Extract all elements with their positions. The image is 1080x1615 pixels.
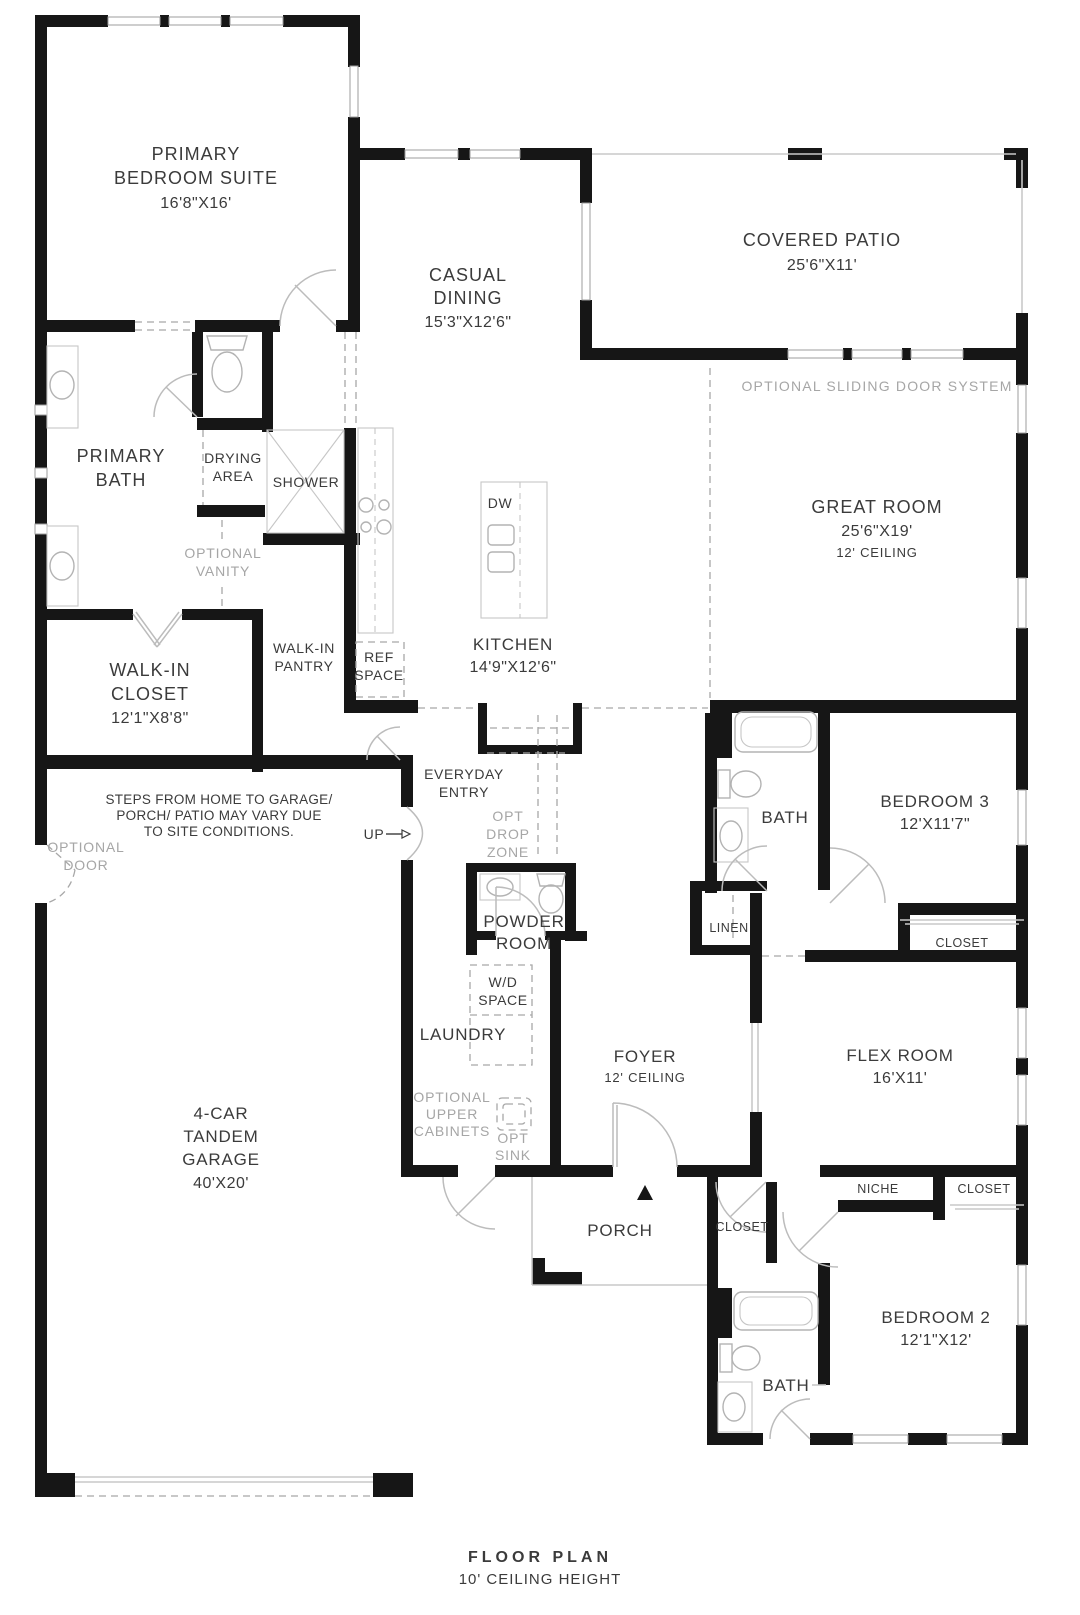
plan-title: FLOOR PLAN: [468, 1549, 612, 1566]
note-optional-upper-cabinets: OPTIONAL: [413, 1089, 490, 1105]
room-dims-flex-room: 16'X11': [873, 1070, 928, 1087]
note-opt-drop-zone: OPT: [492, 808, 523, 824]
room-label-laundry: LAUNDRY: [420, 1025, 507, 1044]
bath-sink-icon: [714, 808, 748, 862]
room-dims-casual-dining: 15'3"X12'6": [424, 314, 511, 331]
bath-sink-icon: [718, 1382, 752, 1432]
room-dims-covered-patio: 25'6"X11': [787, 257, 857, 274]
room-label-kitchen: KITCHEN: [473, 635, 553, 654]
opt-sink-icon: [497, 1098, 531, 1130]
room-label-shower: SHOWER: [273, 474, 340, 490]
room-label-primary-bedroom: PRIMARY: [152, 144, 241, 164]
room-label-bedroom-2: BEDROOM 2: [881, 1308, 990, 1327]
room-label-drying-area: AREA: [213, 468, 254, 484]
open-edges-layer: [532, 154, 1024, 1285]
room-label-garage: GARAGE: [182, 1150, 260, 1169]
room-label-walk-in-closet: WALK-IN: [109, 660, 190, 680]
room-label-everyday-entry: ENTRY: [439, 784, 489, 800]
room-label-great-room: GREAT ROOM: [811, 497, 942, 517]
room-label-primary-bath: BATH: [96, 470, 147, 490]
room-label-bath2: BATH: [762, 1376, 809, 1395]
bathtub-icon: [735, 712, 817, 752]
toilet-icon: [718, 770, 761, 798]
room-label-ref-space: SPACE: [354, 667, 403, 683]
note-optional-sliding-door: OPTIONAL SLIDING DOOR SYSTEM: [741, 378, 1012, 394]
bathtub-icon: [734, 1292, 818, 1330]
toilet-icon: [720, 1344, 760, 1372]
room-label-closet-entry: CLOSET: [715, 1220, 768, 1234]
cooktop-icon: [358, 428, 393, 633]
room-label-covered-patio: COVERED PATIO: [743, 230, 901, 250]
room-label-garage: TANDEM: [183, 1127, 258, 1146]
note-optional-door: DOOR: [63, 857, 108, 873]
note-steps: PORCH/ PATIO MAY VARY DUE: [116, 808, 321, 823]
vanity-sink-icon: [47, 526, 78, 606]
room-label-foyer: FOYER: [614, 1047, 677, 1066]
room-label-closet-bed2: CLOSET: [957, 1182, 1010, 1196]
note-opt-sink: OPT: [497, 1130, 528, 1146]
room-dims-walk-in-closet: 12'1"X8'8": [111, 710, 189, 727]
note-opt-drop-zone: DROP: [486, 826, 530, 842]
room-ceiling-great-room: 12' CEILING: [836, 545, 917, 560]
room-label-drying-area: DRYING: [204, 450, 262, 466]
room-label-niche: NICHE: [857, 1182, 898, 1196]
room-label-ref-space: REF: [364, 649, 394, 665]
note-opt-drop-zone: ZONE: [487, 844, 529, 860]
room-label-closet-bed3: CLOSET: [935, 936, 988, 950]
floor-plan-svg: PRIMARY BEDROOM SUITE 16'8"X16' CASUAL D…: [0, 0, 1080, 1615]
room-dims-bedroom-3: 12'X11'7": [900, 816, 970, 833]
room-label-powder-room: ROOM: [496, 934, 552, 953]
room-label-everyday-entry: EVERYDAY: [424, 766, 504, 782]
floor-plan-page: PRIMARY BEDROOM SUITE 16'8"X16' CASUAL D…: [0, 0, 1080, 1615]
label-dishwasher: DW: [488, 495, 513, 511]
room-label-powder-room: POWDER: [483, 912, 564, 931]
vanity-sink-icon: [47, 346, 78, 428]
room-label-walk-in-pantry: WALK-IN: [273, 640, 335, 656]
room-dims-garage: 40'X20': [193, 1175, 249, 1192]
powder-toilet-icon: [537, 874, 565, 913]
note-optional-upper-cabinets: CABINETS: [414, 1123, 490, 1139]
dashed-layer: [47, 332, 805, 956]
room-label-bath3: BATH: [761, 808, 808, 827]
room-label-walk-in-pantry: PANTRY: [274, 658, 333, 674]
up-arrow-icon: [386, 830, 410, 838]
room-dims-great-room: 25'6"X19': [841, 523, 912, 540]
note-opt-sink: SINK: [495, 1147, 531, 1163]
note-optional-vanity: VANITY: [196, 563, 250, 579]
room-label-casual-dining: CASUAL: [429, 265, 507, 285]
room-dims-kitchen: 14'9"X12'6": [469, 659, 556, 676]
room-dims-primary-bedroom: 16'8"X16': [160, 195, 231, 212]
plan-subtitle: 10' CEILING HEIGHT: [459, 1571, 622, 1588]
room-ceiling-foyer: 12' CEILING: [604, 1070, 685, 1085]
note-steps: STEPS FROM HOME TO GARAGE/: [105, 792, 332, 807]
note-steps: TO SITE CONDITIONS.: [144, 824, 294, 839]
room-label-porch: PORCH: [587, 1221, 652, 1240]
room-label-primary-bedroom: BEDROOM SUITE: [114, 168, 278, 188]
room-label-linen: LINEN: [709, 921, 748, 935]
room-dims-bedroom-2: 12'1"X12': [900, 1332, 971, 1349]
room-label-casual-dining: DINING: [434, 288, 503, 308]
note-optional-door: OPTIONAL: [47, 839, 124, 855]
room-label-primary-bath: PRIMARY: [77, 446, 166, 466]
entry-marker-icon: [637, 1185, 653, 1200]
room-label-bedroom-3: BEDROOM 3: [880, 792, 989, 811]
room-label-garage: 4-CAR: [193, 1104, 248, 1123]
note-optional-upper-cabinets: UPPER: [426, 1106, 478, 1122]
toilet-icon: [207, 336, 247, 392]
room-label-walk-in-closet: CLOSET: [111, 684, 189, 704]
note-optional-vanity: OPTIONAL: [184, 545, 261, 561]
label-up: UP: [364, 826, 385, 842]
room-label-flex-room: FLEX ROOM: [846, 1046, 953, 1065]
room-label-wd-space: W/D: [488, 974, 517, 990]
room-label-wd-space: SPACE: [478, 992, 527, 1008]
